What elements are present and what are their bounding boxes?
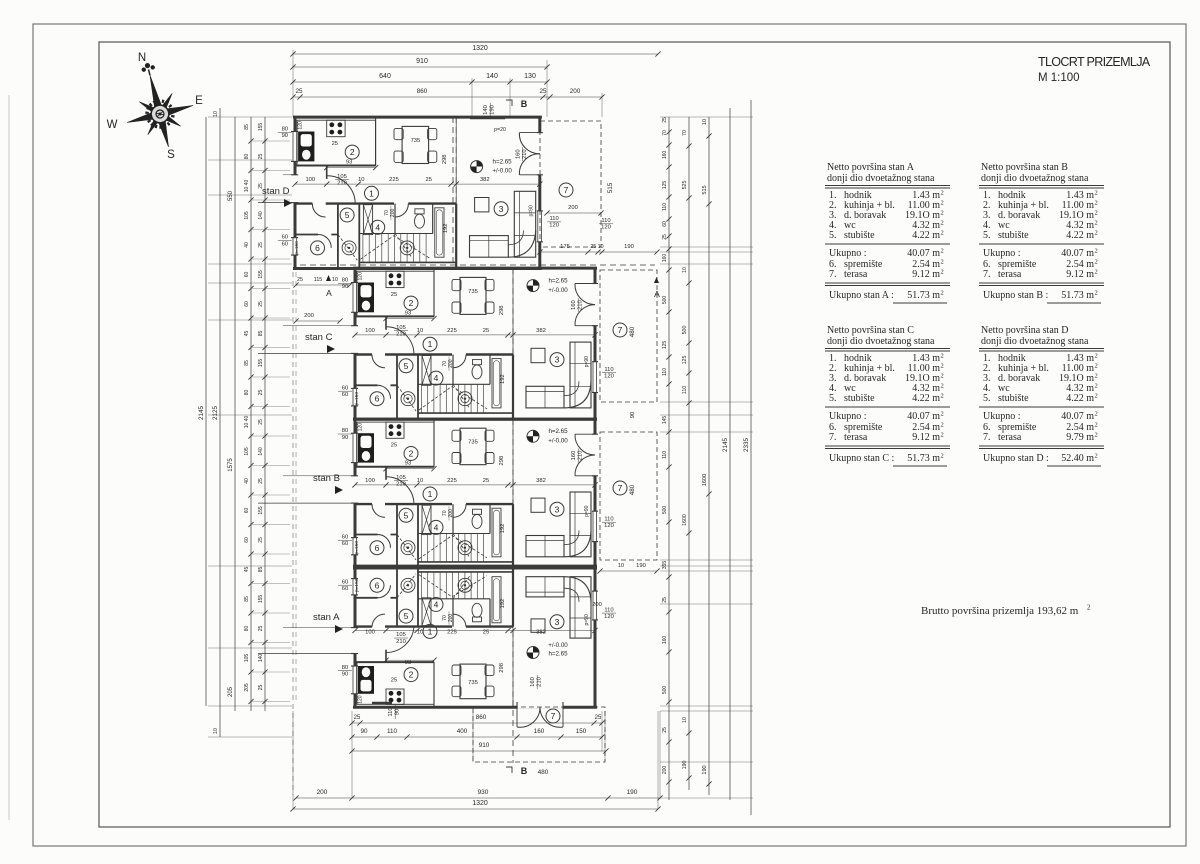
svg-text:105: 105: [396, 632, 406, 638]
svg-text:480: 480: [538, 769, 549, 776]
svg-text:200: 200: [662, 766, 668, 775]
svg-text:80: 80: [244, 390, 250, 396]
svg-text:2: 2: [1095, 220, 1098, 227]
svg-text:2: 2: [1095, 353, 1098, 360]
svg-text:192: 192: [443, 224, 449, 234]
svg-text:1: 1: [369, 188, 374, 198]
svg-text:2: 2: [941, 432, 944, 439]
svg-text:110: 110: [604, 607, 613, 613]
svg-text:140: 140: [258, 211, 264, 220]
svg-text:4.22 m: 4.22 m: [1066, 393, 1094, 404]
svg-text:25: 25: [295, 88, 303, 95]
svg-text:120: 120: [604, 614, 614, 620]
svg-text:Netto površina stan A: Netto površina stan A: [827, 162, 915, 173]
svg-text:Ukupno stan D :: Ukupno stan D :: [983, 453, 1049, 464]
svg-text:80: 80: [282, 127, 288, 133]
svg-text:2: 2: [1095, 269, 1098, 276]
svg-text:1: 1: [428, 489, 433, 499]
svg-text:355: 355: [662, 561, 668, 570]
svg-text:105: 105: [244, 654, 250, 663]
svg-text:1320: 1320: [472, 800, 488, 807]
svg-text:60: 60: [662, 221, 668, 227]
svg-text:10 40: 10 40: [244, 416, 250, 429]
svg-text:7: 7: [564, 185, 569, 195]
svg-text:140: 140: [483, 105, 489, 115]
svg-text:140: 140: [258, 447, 264, 456]
svg-text:70: 70: [682, 130, 688, 136]
svg-text:515: 515: [607, 182, 614, 193]
svg-text:735: 735: [468, 680, 478, 686]
svg-text:120: 120: [601, 225, 611, 231]
svg-text:2: 2: [941, 248, 944, 255]
svg-text:480: 480: [629, 484, 636, 495]
svg-text:6: 6: [375, 580, 380, 590]
svg-text:10 40: 10 40: [244, 180, 250, 193]
svg-text:200: 200: [304, 313, 314, 319]
svg-text:5: 5: [345, 210, 350, 220]
svg-text:5.: 5.: [983, 393, 991, 404]
svg-text:2: 2: [1095, 190, 1098, 197]
svg-text:2: 2: [941, 353, 944, 360]
svg-text:10: 10: [417, 328, 423, 334]
svg-text:100: 100: [365, 629, 375, 635]
svg-text:25: 25: [297, 277, 303, 283]
svg-text:110: 110: [682, 386, 688, 394]
svg-text:S: S: [167, 149, 175, 161]
svg-text:2: 2: [941, 200, 944, 207]
svg-text:3: 3: [555, 617, 560, 627]
svg-text:155: 155: [258, 359, 264, 368]
svg-text:25: 25: [258, 685, 264, 691]
svg-text:3: 3: [555, 355, 560, 365]
svg-text:25: 25: [662, 234, 668, 240]
svg-text:2: 2: [941, 269, 944, 276]
svg-text:40: 40: [244, 242, 250, 248]
svg-text:7.: 7.: [983, 432, 991, 443]
svg-text:2: 2: [350, 147, 355, 157]
svg-text:200: 200: [592, 602, 602, 608]
svg-text:25: 25: [595, 715, 602, 721]
svg-text:120: 120: [358, 695, 364, 704]
svg-text:6: 6: [375, 394, 380, 404]
svg-text:6: 6: [315, 243, 320, 253]
svg-text:1575: 1575: [228, 458, 234, 472]
svg-text:93: 93: [405, 310, 411, 316]
svg-text:stan D: stan D: [262, 186, 290, 197]
svg-text:3: 3: [555, 504, 560, 514]
svg-text:145: 145: [662, 416, 668, 425]
svg-text:120: 120: [298, 121, 304, 130]
svg-text:Brutto površina prizemlja 19: Brutto površina prizemlja 193,62 m: [921, 605, 1079, 617]
svg-text:105: 105: [396, 475, 406, 481]
svg-text:h=2.65: h=2.65: [548, 650, 568, 657]
svg-text:90: 90: [342, 672, 348, 678]
svg-text:4: 4: [434, 600, 439, 610]
svg-text:298: 298: [499, 663, 505, 673]
svg-text:500: 500: [662, 296, 668, 305]
svg-text:192: 192: [500, 599, 506, 609]
svg-text:terasa: terasa: [998, 269, 1022, 280]
svg-text:2: 2: [1095, 259, 1098, 266]
svg-text:155: 155: [258, 595, 264, 604]
svg-text:735: 735: [468, 289, 478, 295]
svg-text:80: 80: [244, 154, 250, 160]
svg-text:10: 10: [358, 177, 364, 183]
svg-text:910: 910: [479, 742, 490, 749]
svg-text:120: 120: [358, 423, 364, 432]
svg-text:25: 25: [258, 626, 264, 632]
svg-text:E: E: [195, 95, 203, 107]
svg-text:25: 25: [539, 88, 547, 95]
svg-text:85: 85: [244, 124, 250, 130]
svg-text:910: 910: [416, 58, 428, 65]
svg-text:25: 25: [391, 677, 397, 683]
svg-text:40: 40: [244, 478, 250, 484]
svg-text:480: 480: [629, 326, 636, 337]
svg-text:225: 225: [447, 478, 457, 484]
svg-text:25: 25: [662, 597, 668, 603]
svg-text:160: 160: [515, 149, 521, 159]
svg-text:W: W: [107, 119, 118, 131]
svg-text:25: 25: [391, 442, 397, 448]
svg-text:93: 93: [405, 660, 411, 666]
svg-text:10: 10: [213, 728, 219, 734]
svg-text:5: 5: [404, 611, 409, 621]
svg-text:160: 160: [571, 451, 577, 461]
svg-text:+/-0.00: +/-0.00: [548, 437, 568, 444]
svg-text:25: 25: [662, 117, 668, 123]
svg-text:1320: 1320: [472, 45, 488, 52]
svg-text:2335: 2335: [743, 438, 750, 453]
svg-text:85: 85: [244, 596, 250, 602]
svg-text:160: 160: [571, 300, 577, 310]
svg-text:2: 2: [941, 220, 944, 227]
svg-text:110: 110: [662, 203, 668, 211]
svg-text:860: 860: [476, 714, 487, 721]
svg-text:40.07 m: 40.07 m: [907, 248, 940, 259]
svg-text:2: 2: [1095, 230, 1098, 237]
svg-text:p=20: p=20: [494, 127, 506, 133]
svg-text:25: 25: [425, 177, 431, 183]
svg-text:85: 85: [258, 567, 264, 573]
svg-text:9.12 m: 9.12 m: [912, 432, 940, 443]
svg-text:120: 120: [604, 374, 614, 380]
svg-text:735: 735: [468, 439, 478, 445]
svg-text:90: 90: [282, 133, 288, 139]
svg-text:+/-0.00: +/-0.00: [492, 168, 512, 175]
svg-text:9.79 m: 9.79 m: [1066, 432, 1094, 443]
svg-text:p=90: p=90: [529, 205, 535, 216]
svg-text:298: 298: [499, 305, 505, 315]
svg-text:25 10: 25 10: [590, 244, 603, 250]
svg-text:10: 10: [417, 629, 423, 635]
svg-text:25: 25: [258, 242, 264, 248]
svg-text:150: 150: [576, 728, 587, 735]
svg-text:60: 60: [244, 272, 250, 278]
svg-text:93: 93: [346, 160, 352, 166]
svg-text:stubište: stubište: [998, 393, 1029, 404]
svg-text:h=2.65: h=2.65: [548, 428, 568, 435]
svg-text:52.40 m: 52.40 m: [1061, 453, 1094, 464]
svg-text:85: 85: [244, 360, 250, 366]
svg-text:110: 110: [549, 216, 558, 222]
svg-text:2: 2: [409, 670, 414, 680]
svg-text:25: 25: [258, 537, 264, 543]
svg-text:140: 140: [258, 654, 264, 663]
svg-text:2: 2: [941, 422, 944, 429]
svg-text:2: 2: [1095, 373, 1098, 380]
svg-text:200: 200: [570, 88, 581, 95]
svg-text:25: 25: [391, 292, 397, 298]
svg-text:2125: 2125: [212, 406, 219, 421]
svg-text:25: 25: [662, 727, 668, 733]
svg-text:400: 400: [457, 728, 468, 735]
svg-text:60: 60: [342, 586, 348, 592]
svg-text:7.: 7.: [829, 432, 837, 443]
svg-text:M 1:100: M 1:100: [1038, 72, 1080, 84]
svg-text:Ukupno :: Ukupno :: [829, 411, 867, 422]
svg-text:120: 120: [358, 272, 364, 281]
svg-text:2145: 2145: [198, 406, 205, 421]
svg-text:80: 80: [244, 626, 250, 632]
svg-text:Ukupno :: Ukupno :: [983, 411, 1021, 422]
svg-text:Netto površina stan C: Netto površina stan C: [827, 325, 914, 336]
svg-text:stubište: stubište: [998, 230, 1029, 241]
svg-text:5.: 5.: [829, 230, 837, 241]
svg-text:51.73 m: 51.73 m: [1061, 290, 1094, 301]
svg-text:200: 200: [568, 205, 578, 211]
svg-text:190: 190: [624, 244, 634, 250]
svg-text:525: 525: [682, 181, 688, 190]
svg-text:25: 25: [258, 390, 264, 396]
svg-text:2: 2: [1095, 363, 1098, 370]
svg-text:7.: 7.: [983, 269, 991, 280]
svg-text:160: 160: [530, 677, 536, 687]
svg-text:2: 2: [1087, 604, 1091, 612]
svg-text:p=150: p=150: [354, 578, 360, 592]
svg-text:terasa: terasa: [844, 269, 868, 280]
svg-text:225: 225: [447, 629, 457, 635]
svg-text:stan B: stan B: [313, 473, 340, 484]
svg-text:45: 45: [244, 331, 250, 337]
svg-text:205: 205: [228, 686, 234, 697]
svg-text:515: 515: [702, 185, 708, 194]
svg-text:125: 125: [682, 356, 688, 365]
svg-text:110: 110: [387, 728, 398, 735]
svg-text:930: 930: [478, 789, 489, 796]
svg-text:120: 120: [549, 223, 559, 229]
svg-text:80: 80: [342, 428, 348, 434]
svg-text:2: 2: [941, 411, 944, 418]
svg-text:90: 90: [630, 412, 636, 418]
svg-text:7: 7: [551, 711, 556, 721]
svg-text:70: 70: [384, 210, 390, 216]
svg-text:p=90: p=90: [584, 614, 590, 625]
svg-text:2: 2: [941, 210, 944, 217]
svg-text:160: 160: [534, 728, 545, 735]
svg-text:190: 190: [627, 789, 638, 796]
svg-text:1: 1: [428, 627, 433, 637]
svg-text:donji dio dvoetažnog stana: donji dio dvoetažnog stana: [827, 336, 935, 347]
svg-text:p=150: p=150: [354, 392, 360, 406]
svg-text:3: 3: [499, 204, 504, 214]
svg-text:110: 110: [388, 707, 394, 716]
svg-text:155: 155: [258, 270, 264, 279]
svg-text:140: 140: [486, 73, 498, 80]
svg-text:+/-0.00: +/-0.00: [548, 287, 568, 294]
svg-text:1600: 1600: [682, 514, 688, 526]
svg-text:192: 192: [500, 374, 506, 384]
svg-text:225: 225: [447, 328, 457, 334]
svg-text:125: 125: [662, 341, 668, 350]
svg-text:Ukupno stan C :: Ukupno stan C :: [829, 453, 894, 464]
svg-text:B: B: [521, 766, 528, 776]
svg-text:90: 90: [342, 435, 348, 441]
svg-text:100: 100: [365, 478, 375, 484]
svg-text:2: 2: [1095, 200, 1098, 207]
svg-text:2: 2: [1095, 383, 1098, 390]
svg-text:105: 105: [396, 325, 406, 331]
svg-text:9.12 m: 9.12 m: [1066, 269, 1094, 280]
svg-text:stan C: stan C: [305, 332, 333, 343]
svg-text:60: 60: [342, 385, 348, 391]
svg-text:donji dio dvoetažnog stana: donji dio dvoetažnog stana: [981, 173, 1089, 184]
svg-text:p=90: p=90: [584, 356, 590, 367]
svg-text:2: 2: [1095, 453, 1098, 460]
svg-text:105: 105: [337, 174, 347, 180]
svg-text:40.07 m: 40.07 m: [907, 411, 940, 422]
svg-text:2: 2: [941, 230, 944, 237]
svg-text:85: 85: [258, 331, 264, 337]
svg-text:4: 4: [434, 373, 439, 383]
svg-text:2: 2: [1095, 432, 1098, 439]
svg-text:100: 100: [305, 177, 315, 183]
svg-text:1: 1: [428, 339, 433, 349]
svg-text:2: 2: [409, 449, 414, 459]
svg-text:25: 25: [258, 301, 264, 307]
svg-text:382: 382: [536, 478, 546, 484]
svg-text:175: 175: [560, 244, 570, 250]
svg-text:115: 115: [314, 277, 322, 283]
svg-text:70: 70: [662, 130, 668, 136]
svg-text:105: 105: [244, 447, 250, 456]
svg-text:10: 10: [213, 111, 219, 117]
svg-text:210: 210: [396, 331, 406, 337]
svg-text:225: 225: [389, 177, 399, 183]
svg-text:80: 80: [342, 278, 348, 284]
svg-text:25: 25: [483, 629, 489, 635]
svg-text:stan A: stan A: [313, 612, 340, 623]
svg-text:210: 210: [396, 639, 406, 645]
svg-text:500: 500: [662, 506, 668, 515]
svg-text:105: 105: [244, 211, 250, 220]
svg-text:45: 45: [244, 567, 250, 573]
svg-text:Ukupno stan B :: Ukupno stan B :: [983, 290, 1048, 301]
svg-text:stubište: stubište: [844, 230, 875, 241]
svg-text:25: 25: [258, 419, 264, 425]
svg-text:2: 2: [941, 393, 944, 400]
svg-text:terasa: terasa: [844, 432, 868, 443]
svg-text:25: 25: [258, 154, 264, 160]
svg-text:110: 110: [604, 516, 613, 522]
svg-text:2: 2: [1095, 248, 1098, 255]
svg-text:Netto površina stan D: Netto površina stan D: [981, 325, 1069, 336]
svg-text:500: 500: [662, 686, 668, 695]
svg-text:60: 60: [342, 535, 348, 541]
svg-text:p=150: p=150: [354, 541, 360, 555]
svg-text:382: 382: [480, 177, 490, 183]
svg-text:60: 60: [282, 241, 288, 247]
svg-text:Ukupno :: Ukupno :: [983, 248, 1021, 259]
svg-text:stubište: stubište: [844, 393, 875, 404]
svg-text:5.: 5.: [983, 230, 991, 241]
svg-text:60: 60: [342, 579, 348, 585]
svg-text:10: 10: [417, 478, 423, 484]
svg-text:25: 25: [483, 478, 489, 484]
svg-text:B: B: [521, 99, 528, 109]
svg-text:2: 2: [1095, 411, 1098, 418]
svg-text:60: 60: [244, 537, 250, 543]
svg-text:200: 200: [317, 789, 328, 796]
svg-text:60: 60: [244, 508, 250, 514]
svg-text:25: 25: [354, 715, 361, 721]
svg-text:p=150: p=150: [294, 241, 300, 255]
svg-text:2: 2: [1095, 210, 1098, 217]
svg-text:Ukupno :: Ukupno :: [829, 248, 867, 259]
svg-text:Netto površina stan B: Netto površina stan B: [981, 162, 1068, 173]
svg-text:100: 100: [365, 328, 375, 334]
svg-text:4.22 m: 4.22 m: [912, 393, 940, 404]
svg-text:860: 860: [417, 88, 428, 95]
svg-text:2145: 2145: [722, 438, 729, 453]
svg-text:2: 2: [1095, 393, 1098, 400]
svg-text:735: 735: [411, 138, 421, 144]
svg-text:h=2.65: h=2.65: [493, 159, 513, 166]
svg-text:190: 190: [702, 765, 708, 774]
svg-text:51.73 m: 51.73 m: [907, 290, 940, 301]
svg-text:6: 6: [375, 543, 380, 553]
svg-text:210: 210: [396, 481, 406, 487]
svg-text:60: 60: [244, 301, 250, 307]
svg-text:Ukupno stan A :: Ukupno stan A :: [829, 290, 894, 301]
svg-text:2: 2: [941, 383, 944, 390]
svg-text:10: 10: [702, 119, 708, 125]
svg-text:TLOCRT PRIZEMLJA: TLOCRT PRIZEMLJA: [1038, 55, 1151, 69]
svg-text:2: 2: [941, 363, 944, 370]
svg-text:4: 4: [375, 222, 380, 232]
svg-text:7: 7: [618, 325, 623, 335]
svg-text:5.: 5.: [829, 393, 837, 404]
svg-text:25: 25: [258, 478, 264, 484]
svg-text:125: 125: [662, 181, 668, 190]
svg-text:25: 25: [258, 183, 264, 189]
svg-text:4.22 m: 4.22 m: [912, 230, 940, 241]
svg-text:1600: 1600: [702, 474, 708, 486]
svg-text:4: 4: [434, 523, 439, 533]
svg-text:110: 110: [662, 451, 668, 459]
svg-text:80: 80: [342, 665, 348, 671]
svg-text:2: 2: [941, 190, 944, 197]
svg-text:160: 160: [662, 254, 668, 263]
svg-text:160: 160: [662, 636, 668, 645]
svg-text:10: 10: [682, 717, 688, 723]
svg-text:120: 120: [604, 523, 614, 529]
svg-text:93: 93: [405, 461, 411, 467]
svg-text:p=90: p=90: [584, 505, 590, 516]
svg-text:60: 60: [342, 541, 348, 547]
svg-text:500: 500: [682, 326, 688, 335]
svg-text:2: 2: [409, 298, 414, 308]
